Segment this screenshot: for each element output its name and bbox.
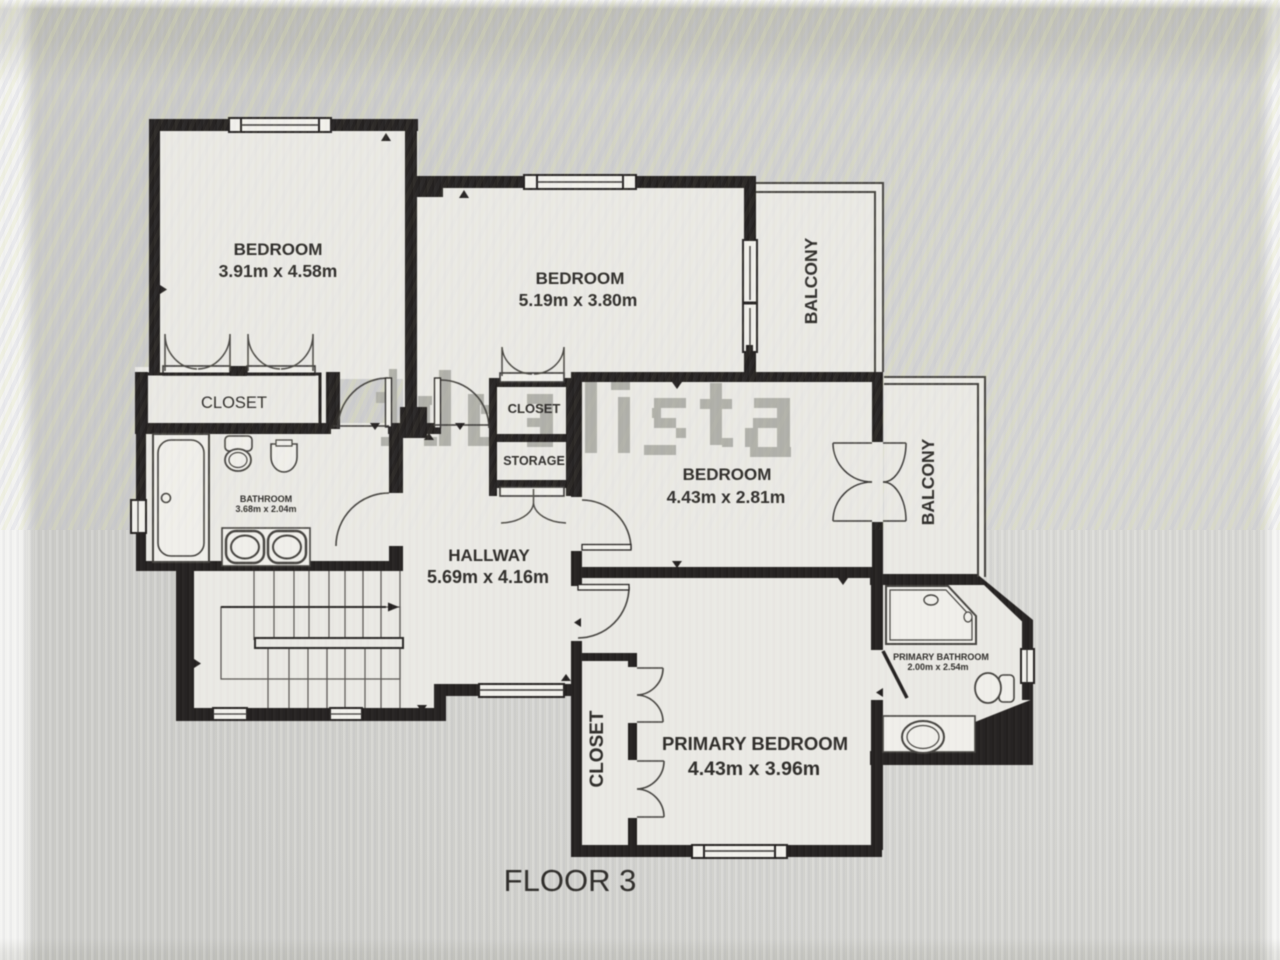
svg-text:BATHROOM: BATHROOM: [240, 494, 292, 504]
svg-text:BEDROOM: BEDROOM: [683, 465, 772, 484]
svg-text:PRIMARY BATHROOM: PRIMARY BATHROOM: [893, 652, 989, 662]
svg-text:HALLWAY: HALLWAY: [448, 546, 530, 565]
svg-text:BALCONY: BALCONY: [918, 438, 938, 525]
svg-text:BEDROOM: BEDROOM: [234, 240, 323, 259]
svg-text:5.19m x 3.80m: 5.19m x 3.80m: [519, 290, 638, 310]
svg-text:BEDROOM: BEDROOM: [536, 269, 625, 288]
svg-text:CLOSET: CLOSET: [587, 710, 608, 787]
svg-text:STORAGE: STORAGE: [503, 454, 565, 468]
svg-text:CLOSET: CLOSET: [201, 394, 267, 412]
svg-text:5.69m x 4.16m: 5.69m x 4.16m: [427, 567, 549, 587]
svg-text:3.68m x 2.04m: 3.68m x 2.04m: [235, 504, 296, 514]
svg-text:3.91m x 4.58m: 3.91m x 4.58m: [219, 261, 338, 281]
svg-text:PRIMARY BEDROOM: PRIMARY BEDROOM: [662, 733, 848, 754]
svg-text:2.00m x 2.54m: 2.00m x 2.54m: [907, 662, 968, 672]
svg-text:FLOOR 3: FLOOR 3: [504, 863, 637, 898]
svg-text:4.43m x 2.81m: 4.43m x 2.81m: [667, 487, 786, 507]
svg-text:CLOSET: CLOSET: [508, 401, 561, 416]
svg-text:BALCONY: BALCONY: [801, 237, 821, 324]
svg-text:4.43m x 3.96m: 4.43m x 3.96m: [688, 758, 820, 780]
